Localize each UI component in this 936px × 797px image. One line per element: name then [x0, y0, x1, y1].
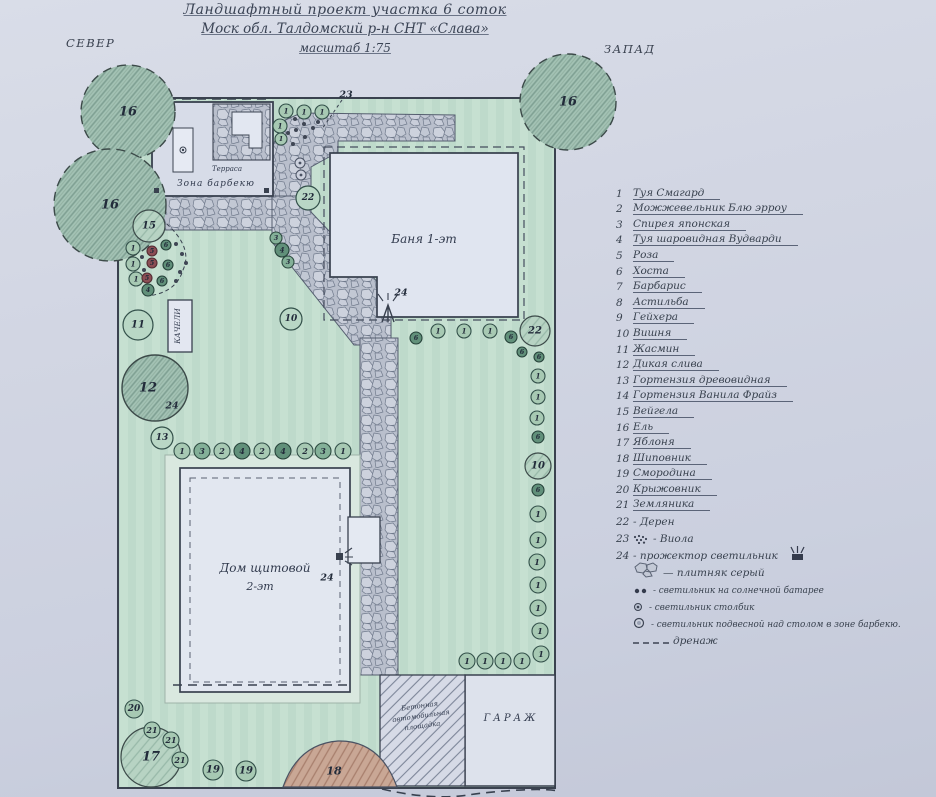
terrace-label: Терраса — [212, 165, 242, 173]
plant-4: 4 — [275, 243, 289, 257]
legend-item-18: 18Шиповник — [616, 449, 934, 465]
plant-1: 1 — [126, 257, 140, 271]
tree-11: 11 — [123, 310, 153, 340]
legend-item-number: 11 — [616, 344, 633, 356]
plant-1: 1 — [431, 324, 445, 338]
house-building: Дом щитовой 2-эт — [165, 455, 380, 703]
tree-16: 16 — [520, 54, 616, 150]
plant-number: 1 — [278, 122, 283, 131]
legend-item-19: 19Смородина — [616, 465, 934, 481]
viola-dot — [302, 122, 306, 126]
plant-6: 6 — [505, 331, 517, 343]
viola-dot — [286, 131, 290, 135]
plant-1: 1 — [483, 324, 497, 338]
plant-number: 3 — [320, 446, 326, 456]
legend-item-20: 20Крыжовник — [616, 480, 934, 496]
legend-item-number: 24 — [616, 550, 633, 562]
legend-item-text: Вишня — [633, 327, 687, 340]
tree-label: 16 — [119, 105, 137, 120]
tree-label: 17 — [142, 750, 160, 765]
plant-number: 6 — [414, 334, 419, 342]
plant-number: 6 — [520, 348, 525, 356]
viola-icon — [633, 534, 649, 544]
legend-item-text: - светильник на солнечной батарее — [653, 586, 828, 596]
projector-icon — [788, 544, 808, 561]
plant-number: 4 — [280, 446, 286, 456]
legend-item-number: 19 — [616, 468, 633, 480]
legend-item-number: 6 — [616, 266, 633, 278]
plant-number: 6 — [509, 333, 514, 341]
viola-dot — [178, 270, 182, 274]
plant-number: 19 — [239, 766, 253, 777]
plant-number: 2 — [258, 446, 265, 456]
corner-lamp-icon — [264, 188, 269, 193]
plant-6: 6 — [410, 332, 422, 344]
post-icon — [633, 602, 645, 612]
solar-icon — [633, 587, 649, 595]
tree-label: 13 — [156, 433, 169, 443]
legend-item-text: Смородина — [633, 467, 712, 480]
plant-1: 1 — [273, 119, 287, 133]
legend-item-17: 17Яблоня — [616, 434, 934, 450]
legend-item-number: 1 — [616, 188, 633, 200]
plant-number: 6 — [160, 277, 165, 285]
legend-item-number: 23 — [616, 533, 633, 545]
corner-lamp-icon — [154, 188, 159, 193]
legend-item-number: 5 — [616, 250, 633, 262]
plant-number: 1 — [537, 626, 543, 636]
plant-1: 1 — [533, 646, 549, 662]
legend-item-7: 7Барбарис — [616, 278, 934, 294]
legend-item-number: 3 — [616, 219, 633, 231]
bbq-zone-label: Зона барбекю — [177, 178, 255, 189]
tree-22: 22 — [296, 186, 320, 210]
legend-item-text: - Виола — [653, 533, 698, 545]
house-porch — [348, 517, 380, 563]
plant-number: 1 — [535, 580, 541, 590]
plant-number: 1 — [500, 656, 506, 666]
legend-item-text: Гортензия Ванила Фрайз — [633, 389, 793, 402]
swing-label: КАЧЕЛИ — [173, 308, 182, 345]
viola-dot — [140, 255, 144, 259]
plant-number: 2 — [301, 446, 308, 456]
area-label-18: 18 — [326, 765, 342, 778]
legend-item-text: - Дерен — [633, 516, 679, 528]
tree-label: 12 — [139, 381, 157, 396]
tree-label: 11 — [131, 320, 145, 331]
legend-item-text: Вейгела — [633, 405, 694, 418]
viola-dot — [316, 120, 320, 124]
plant-number: 5 — [145, 274, 150, 282]
plant-4: 4 — [275, 443, 291, 459]
viola-dot — [293, 117, 297, 121]
plant-number: 3 — [199, 446, 205, 456]
plant-2: 2 — [214, 443, 230, 459]
plant-number: 1 — [131, 260, 136, 269]
house-label-line1: Дом щитовой — [218, 561, 310, 575]
legend-item-number: 16 — [616, 422, 633, 434]
plant-1: 1 — [531, 369, 545, 383]
plant-19: 19 — [203, 760, 223, 780]
plant-3: 3 — [315, 443, 331, 459]
tree-22: 22 — [520, 316, 550, 346]
viola-dot — [294, 128, 298, 132]
legend-item-text: Земляника — [633, 498, 710, 511]
legend-item-text: Можжевельник Блю эрроу — [633, 202, 803, 215]
plant-21: 21 — [163, 732, 179, 748]
plant-6: 6 — [532, 431, 544, 443]
plant-number: 1 — [131, 244, 136, 253]
legend-item-number: 9 — [616, 312, 633, 324]
legend-item-solar: - светильник на солнечной батарее — [616, 579, 934, 596]
viola-dot — [311, 126, 315, 130]
viola-dot — [174, 279, 178, 283]
plant-4: 4 — [142, 284, 154, 296]
plant-2: 2 — [297, 443, 313, 459]
plant-1: 1 — [174, 443, 190, 459]
legend-item-23: 23- Виола — [616, 528, 934, 545]
plant-1: 1 — [530, 532, 546, 548]
legend-item-text: Барбарис — [633, 280, 702, 293]
legend-item-text: Роза — [633, 249, 674, 262]
marker-label-24: 24 — [164, 401, 178, 412]
bath-label: Баня 1-эт — [390, 232, 456, 246]
landscape-plan-photo: Ландшафтный проект участка 6 соток Моск … — [0, 0, 936, 797]
garage-building: ГАРАЖ — [465, 675, 555, 786]
legend-item-text: - светильник подвесной над столом в зоне… — [651, 620, 905, 630]
plant-number: 5 — [150, 259, 155, 267]
plant-1: 1 — [457, 324, 471, 338]
legend-item-post: - светильник столбик — [616, 596, 934, 613]
tree-16: 16 — [54, 149, 166, 261]
legend-item-15: 15Вейгела — [616, 402, 934, 418]
tree-label: 22 — [527, 326, 542, 337]
plant-1: 1 — [315, 105, 329, 119]
plant-number: 20 — [127, 704, 141, 714]
plant-number: 6 — [164, 241, 169, 249]
plant-number: 21 — [173, 755, 185, 765]
legend-item-pendant: - светильник подвесной над столом в зоне… — [616, 613, 934, 630]
plant-21: 21 — [172, 752, 188, 768]
legend-item-text: Жасмин — [633, 343, 695, 356]
plant-number: 1 — [340, 446, 346, 456]
plant-number: 4 — [239, 446, 245, 456]
viola-dot — [184, 261, 188, 265]
legend-item-number: 14 — [616, 390, 633, 402]
legend-item-text: Гортензия древовидная — [633, 374, 787, 387]
plant-1: 1 — [459, 653, 475, 669]
legend-item-number: 10 — [616, 328, 633, 340]
legend-item-2: 2Можжевельник Блю эрроу — [616, 200, 934, 216]
marker-label-24: 24 — [319, 573, 333, 584]
plant-number: 4 — [146, 286, 151, 294]
legend-item-text: Туя шаровидная Вудварди — [633, 233, 798, 246]
plant-number: 1 — [534, 557, 540, 567]
legend-item-number: 4 — [616, 234, 633, 246]
plant-1: 1 — [514, 653, 530, 669]
tree-label: 22 — [301, 193, 315, 203]
legend-item-number: 20 — [616, 484, 633, 496]
dash-icon — [633, 640, 669, 646]
legend-item-22: 22- Дерен — [616, 511, 934, 528]
viola-dot — [180, 252, 184, 256]
legend-item-number: 7 — [616, 281, 633, 293]
plant-number: 1 — [535, 535, 541, 545]
plant-number: 1 — [538, 649, 544, 659]
legend-item-text: Шиповник — [633, 452, 707, 465]
legend-item-21: 21Земляника — [616, 496, 934, 512]
plant-4: 4 — [234, 443, 250, 459]
plant-number: 1 — [536, 372, 541, 381]
legend-item-text: Крыжовник — [633, 483, 717, 496]
plant-number: 4 — [280, 246, 285, 255]
tree-label: 16 — [101, 198, 119, 213]
plant-6: 6 — [163, 260, 173, 270]
legend-item-11: 11Жасмин — [616, 340, 934, 356]
plant-1: 1 — [495, 653, 511, 669]
legend-item-text: Гейхера — [633, 311, 694, 324]
plant-1: 1 — [126, 241, 140, 255]
plant-legend: 1Туя Смагард2Можжевельник Блю эрроу3Спир… — [616, 184, 934, 647]
plant-number: 5 — [150, 247, 155, 255]
marker-label-24: 24 — [393, 288, 407, 299]
plant-6: 6 — [157, 276, 167, 286]
plant-number: 1 — [436, 327, 441, 336]
plant-1: 1 — [530, 600, 546, 616]
plant-3: 3 — [282, 256, 294, 268]
legend-item-text: Астильба — [633, 296, 705, 309]
plant-number: 1 — [488, 327, 493, 336]
plant-1: 1 — [335, 443, 351, 459]
plant-number: 1 — [302, 108, 307, 117]
plant-5: 5 — [142, 273, 152, 283]
plant-number: 2 — [218, 446, 225, 456]
legend-item-12: 12Дикая слива — [616, 356, 934, 372]
legend-item-text: дренаж — [673, 635, 722, 647]
legend-item-stones: — плитняк серый — [616, 562, 934, 579]
legend-item-text: Хоста — [633, 265, 685, 278]
legend-item-text: Дикая слива — [633, 358, 719, 371]
plant-5: 5 — [147, 246, 157, 256]
plant-2: 2 — [254, 443, 270, 459]
tree-10: 10 — [280, 308, 302, 330]
legend-item-number: 13 — [616, 375, 633, 387]
legend-item-number: 8 — [616, 297, 633, 309]
stones-icon — [633, 561, 659, 578]
plant-number: 1 — [482, 656, 488, 666]
tree-label: 16 — [559, 95, 577, 110]
legend-item-text: - светильник столбик — [649, 603, 758, 613]
plant-number: 6 — [536, 433, 541, 441]
legend-item-number: 2 — [616, 203, 633, 215]
legend-item-number: 18 — [616, 453, 633, 465]
plant-1: 1 — [530, 577, 546, 593]
viola-dot — [291, 142, 295, 146]
legend-item-24: 24- прожектор светильник — [616, 545, 934, 562]
house-label-line2: 2-эт — [245, 580, 273, 593]
plant-1: 1 — [531, 390, 545, 404]
plant-number: 6 — [537, 353, 542, 361]
plant-21: 21 — [144, 722, 160, 738]
plant-6: 6 — [534, 352, 544, 362]
plant-1: 1 — [530, 411, 544, 425]
viola-dot — [303, 135, 307, 139]
legend-item-16: 16Ель — [616, 418, 934, 434]
plant-number: 1 — [536, 393, 541, 402]
plant-3: 3 — [270, 232, 282, 244]
plant-number: 21 — [145, 725, 157, 735]
plant-number: 1 — [464, 656, 470, 666]
plant-number: 1 — [535, 414, 540, 423]
plant-number: 3 — [274, 234, 279, 242]
tree-label: 10 — [531, 461, 545, 472]
plant-number: 19 — [206, 765, 220, 776]
legend-item-13: 13Гортензия древовидная — [616, 371, 934, 387]
plant-number: 1 — [284, 107, 289, 116]
tree-15: 15 — [133, 210, 165, 242]
swing: КАЧЕЛИ — [168, 300, 192, 352]
legend-item-6: 6Хоста — [616, 262, 934, 278]
tree-label: 15 — [142, 221, 156, 232]
tree-10: 10 — [525, 453, 551, 479]
legend-item-dash: дренаж — [616, 630, 934, 647]
tree-16: 16 — [81, 65, 175, 159]
plant-number: 1 — [320, 108, 325, 117]
plant-1: 1 — [297, 105, 311, 119]
legend-item-number: 21 — [616, 499, 633, 511]
legend-item-10: 10Вишня — [616, 324, 934, 340]
garage-label: ГАРАЖ — [483, 713, 539, 724]
plant-3: 3 — [194, 443, 210, 459]
plant-1: 1 — [477, 653, 493, 669]
legend-item-14: 14Гортензия Ванила Фрайз — [616, 387, 934, 403]
plant-1: 1 — [129, 272, 143, 286]
viola-dot — [142, 268, 146, 272]
viola-dot — [174, 242, 178, 246]
plant-number: 1 — [535, 509, 541, 519]
plant-20: 20 — [125, 700, 143, 718]
plant-1: 1 — [532, 623, 548, 639]
plant-number: 1 — [519, 656, 525, 666]
plant-6: 6 — [161, 240, 171, 250]
plant-number: 1 — [535, 603, 541, 613]
marker-label-23: 23 — [338, 90, 353, 101]
legend-item-text: Спирея японская — [633, 218, 746, 231]
plant-1: 1 — [530, 506, 546, 522]
plant-1: 1 — [279, 104, 293, 118]
tree-label: 10 — [285, 314, 298, 324]
legend-item-8: 8Астильба — [616, 293, 934, 309]
plant-6: 6 — [517, 347, 527, 357]
plant-6: 6 — [532, 484, 544, 496]
plant-5: 5 — [147, 258, 157, 268]
legend-item-1: 1Туя Смагард — [616, 184, 934, 200]
tree-13: 13 — [151, 427, 173, 449]
plant-number: 6 — [166, 261, 171, 269]
plant-1: 1 — [529, 554, 545, 570]
legend-item-text: Ель — [633, 421, 669, 434]
legend-item-number: 12 — [616, 359, 633, 371]
pendant-icon — [633, 617, 647, 629]
plant-19: 19 — [236, 761, 256, 781]
legend-item-number: 15 — [616, 406, 633, 418]
plant-number: 3 — [286, 258, 291, 266]
legend-item-text: — плитняк серый — [663, 567, 769, 579]
concrete-pad: Бетонная автомобильная площадка — [380, 675, 465, 786]
legend-item-4: 4Туя шаровидная Вудварди — [616, 231, 934, 247]
plant-number: 1 — [462, 327, 467, 336]
legend-item-number: 22 — [616, 516, 633, 528]
legend-item-3: 3Спирея японская — [616, 215, 934, 231]
plant-1: 1 — [275, 133, 287, 145]
legend-item-text: Туя Смагард — [633, 187, 720, 200]
legend-item-5: 5Роза — [616, 246, 934, 262]
plant-number: 1 — [134, 275, 139, 284]
legend-item-text: Яблоня — [633, 436, 691, 449]
plant-number: 1 — [279, 135, 284, 143]
plant-number: 1 — [179, 446, 185, 456]
plant-number: 21 — [164, 735, 176, 745]
legend-item-number: 17 — [616, 437, 633, 449]
legend-item-9: 9Гейхера — [616, 309, 934, 325]
plant-number: 6 — [536, 486, 541, 494]
